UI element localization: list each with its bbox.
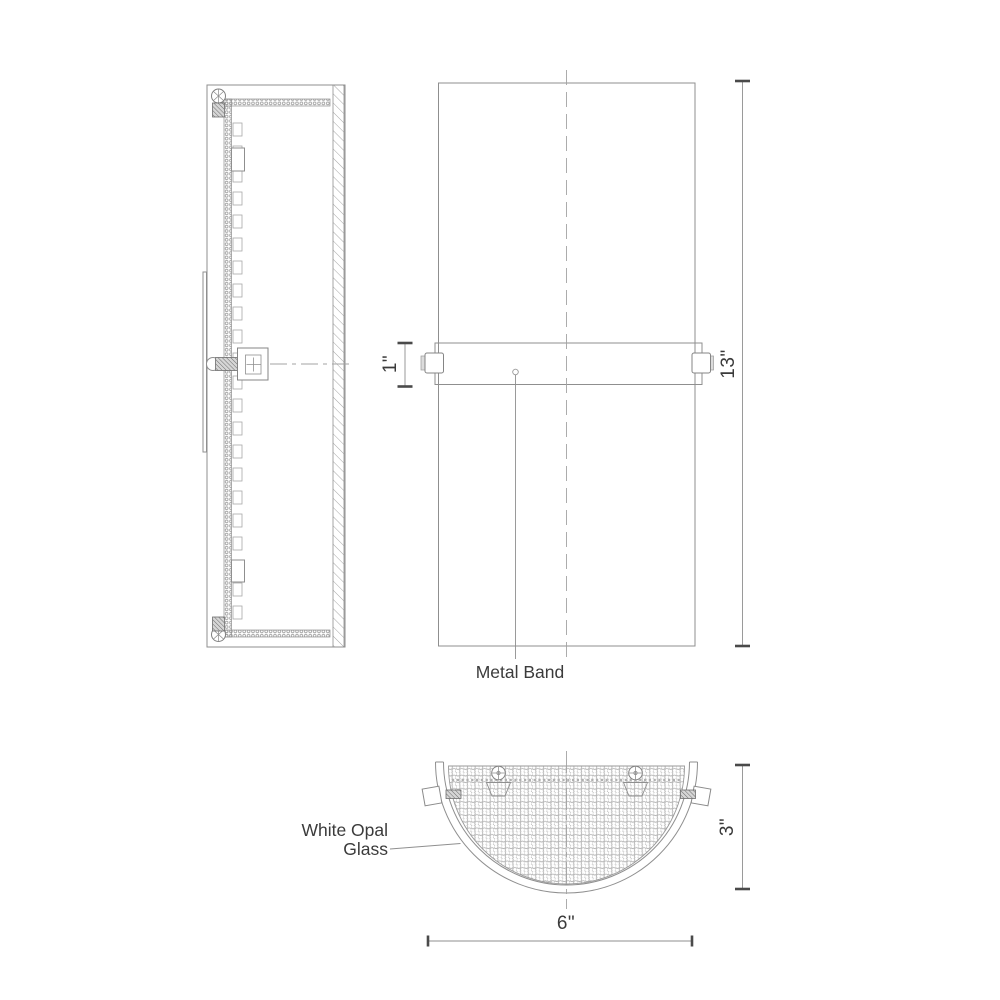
- white-opal-glass-label-line2: Glass: [343, 839, 388, 859]
- band-screw-dot: [513, 369, 519, 375]
- band-clip-right: [692, 353, 714, 373]
- band-clip-left: [421, 353, 444, 373]
- lower-socket: [232, 560, 245, 582]
- dim-label-fixture-height: 13": [718, 349, 740, 378]
- upper-socket: [232, 148, 245, 171]
- white-opal-glass-label: White Opal Glass: [284, 821, 388, 859]
- lamp-bar: [203, 272, 207, 452]
- back-plate-hatched: [333, 85, 344, 647]
- side-fastener-right: [681, 786, 711, 806]
- sconce-drawing: [0, 0, 1000, 1000]
- metal-band-rect: [435, 343, 702, 385]
- dim-label-width: 6": [557, 913, 575, 935]
- dim-width: [428, 936, 692, 947]
- dim-label-depth: 3": [717, 818, 739, 836]
- white-opal-glass-label-line1: White Opal: [301, 820, 388, 840]
- metal-band-label: Metal Band: [476, 663, 565, 682]
- bottom-screw: [212, 617, 226, 642]
- band-screw-bracket: [207, 348, 269, 380]
- glass-leader: [390, 844, 461, 850]
- front-view: [398, 70, 751, 659]
- side-view: [203, 85, 349, 647]
- top-screw: [212, 89, 226, 117]
- dim-label-band-height: 1": [380, 355, 402, 373]
- drawing-page: Metal Band White Opal Glass 1" 13" 3" 6": [0, 0, 1000, 1000]
- top-plate: [222, 99, 330, 106]
- bottom-plate: [222, 630, 330, 637]
